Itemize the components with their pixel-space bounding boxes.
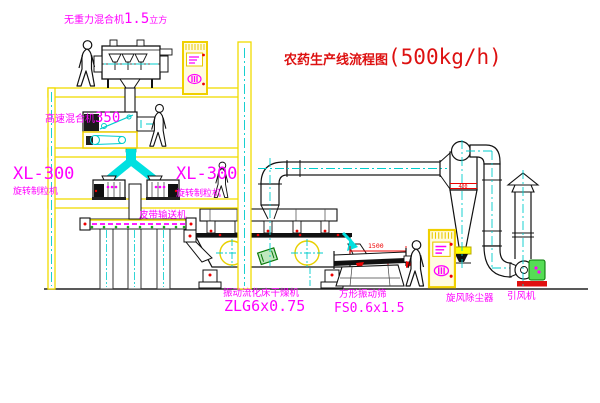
sieve-name: 方形振动筛 [339, 288, 387, 300]
granulator-right [146, 176, 180, 200]
floor-slab-mid [48, 148, 250, 157]
gravity-free-mixer [94, 40, 172, 114]
flow-diagram: 无重力混合机1.5立方 农药生产线流程图(500kg/h) 高速混合机350 X… [0, 0, 600, 403]
conveyor-label: 皮带输送机 [139, 209, 187, 221]
cyclone-name: 旋风除尘器 [446, 292, 494, 304]
cyclone-inlet-reducer [440, 153, 450, 189]
duct-elbow [261, 162, 287, 184]
granulator-right-model: XL-300 [176, 164, 237, 184]
mixer1-label: 无重力混合机1.5立方 [64, 11, 167, 27]
fan-motor [529, 260, 545, 280]
diagram-canvas: 无重力混合机1.5立方 农药生产线流程图(500kg/h) 高速混合机350 X… [0, 0, 600, 403]
control-cabinet [429, 230, 455, 287]
sieve-model: FS0.6x1.5 [334, 301, 404, 316]
belt-conveyor [80, 218, 212, 289]
fan-base [517, 281, 547, 287]
page-title: 农药生产线流程图(500kg/h) [283, 45, 502, 69]
cyclone-marking: 400 [458, 184, 467, 190]
control-cabinet [183, 42, 207, 94]
worker-figure [77, 41, 95, 86]
floor-slab-low [48, 199, 250, 208]
floor-slab-top [48, 88, 250, 97]
induced-draft-fan [510, 260, 547, 287]
granulator-right-name: 旋转制粒机 [176, 187, 221, 199]
mixer1-body [102, 46, 160, 79]
sieve-stand [336, 265, 404, 286]
dryer-model: ZLG6x0.75 [224, 297, 305, 315]
granulator-left-name: 旋转制粒机 [13, 185, 58, 197]
fan-name: 引风机 [507, 290, 536, 302]
granulator-left [92, 176, 126, 200]
mixer1-downpipe [125, 88, 135, 114]
granulator-left-model: XL-300 [13, 164, 74, 184]
sieve-length-dim-text: 1500 [368, 242, 384, 250]
dryer-spring-mounts [199, 270, 343, 288]
